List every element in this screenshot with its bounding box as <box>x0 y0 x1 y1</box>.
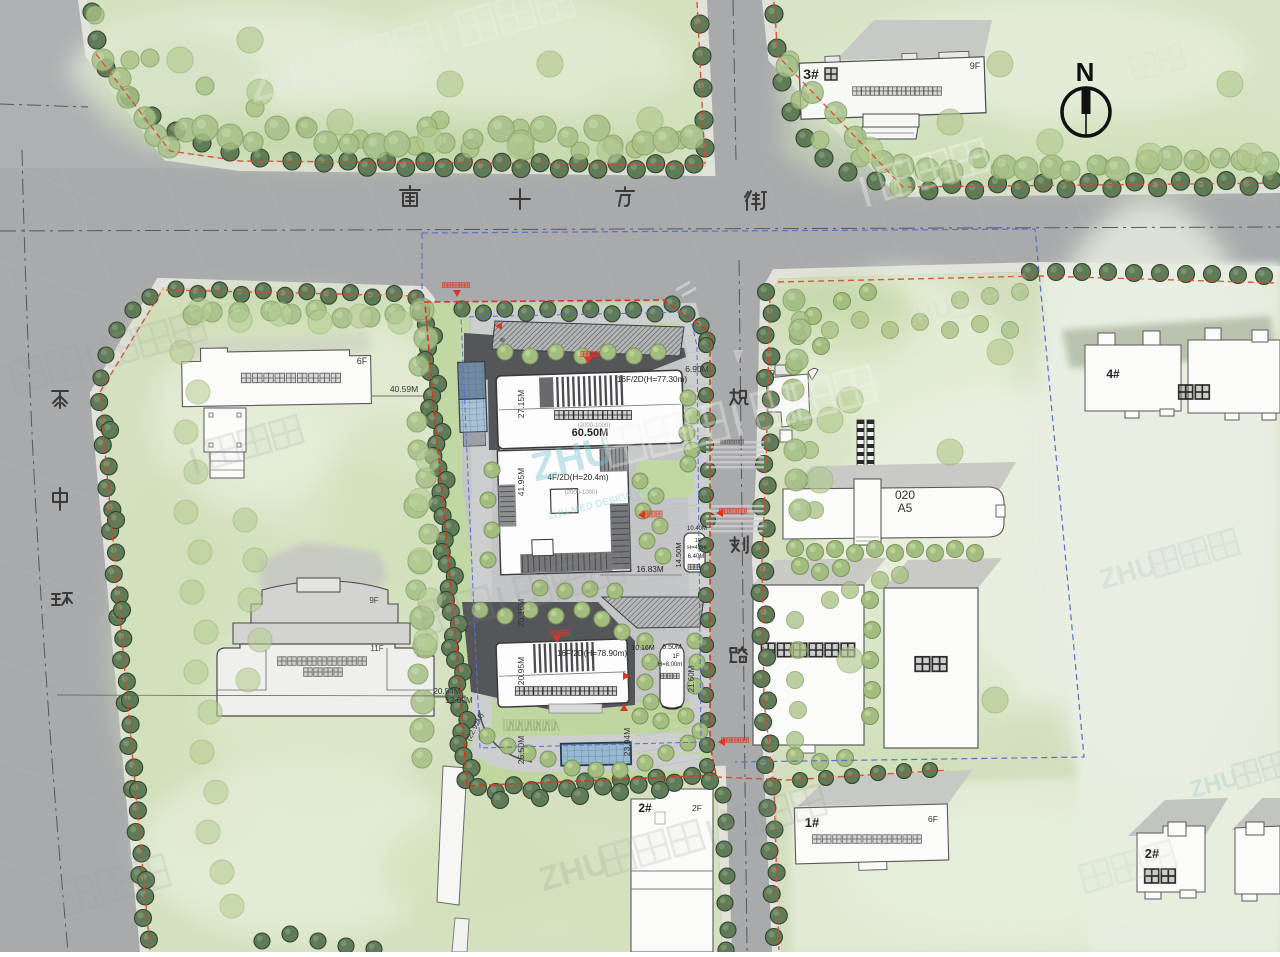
svg-text:H=8.00m: H=8.00m <box>658 662 683 668</box>
svg-text:1F: 1F <box>672 654 679 660</box>
svg-text:41.95M: 41.95M <box>516 468 526 496</box>
svg-text:6.90M: 6.90M <box>685 364 709 374</box>
svg-text:40.59M: 40.59M <box>390 384 418 394</box>
svg-text:12.00M: 12.00M <box>445 696 472 705</box>
svg-text:4#: 4# <box>1106 367 1120 381</box>
svg-text:N: N <box>1076 57 1095 87</box>
svg-text:16F/2D(H=77.30m): 16F/2D(H=77.30m) <box>617 375 688 384</box>
svg-text:9F: 9F <box>970 61 981 71</box>
svg-text:2F: 2F <box>692 803 702 813</box>
svg-text:23.94M: 23.94M <box>622 728 632 756</box>
svg-text:6F: 6F <box>928 814 938 824</box>
svg-text:H=4.8m: H=4.8m <box>687 545 707 551</box>
svg-text:16F/2D(H=78.90m): 16F/2D(H=78.90m) <box>557 649 628 658</box>
svg-text:11F: 11F <box>370 644 383 653</box>
svg-text:27.15M: 27.15M <box>516 390 526 418</box>
svg-text:(2000-1000): (2000-1000) <box>565 490 598 496</box>
svg-text:21.60M: 21.60M <box>687 665 696 692</box>
svg-text:1F: 1F <box>695 538 702 544</box>
svg-text:20.54M: 20.54M <box>433 687 460 696</box>
svg-text:6.40M: 6.40M <box>688 554 705 560</box>
svg-text:020: 020 <box>895 488 915 502</box>
svg-text:10.16M: 10.16M <box>631 645 655 652</box>
svg-text:2#: 2# <box>638 801 652 815</box>
svg-text:25.50M: 25.50M <box>516 736 526 764</box>
svg-text:9F: 9F <box>369 596 378 605</box>
svg-text:6F: 6F <box>357 356 368 366</box>
svg-text:6.50M: 6.50M <box>662 644 682 651</box>
svg-text:3#: 3# <box>803 66 819 82</box>
svg-text:14.50M: 14.50M <box>674 542 683 567</box>
svg-text:10.40M: 10.40M <box>687 526 707 532</box>
svg-text:A5: A5 <box>898 501 913 515</box>
svg-text:20.95M: 20.95M <box>516 657 526 685</box>
svg-text:16.83M: 16.83M <box>636 565 663 574</box>
svg-text:宽: 宽 <box>499 337 506 342</box>
